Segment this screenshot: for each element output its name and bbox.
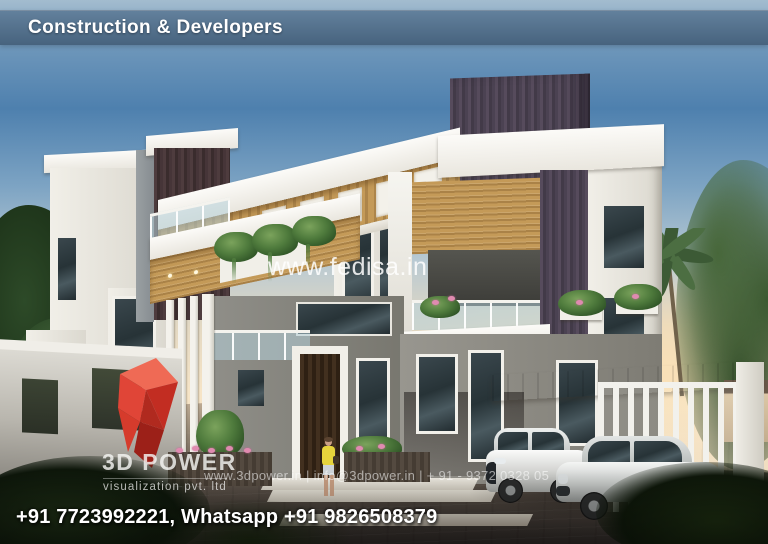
- wall-opening: [22, 378, 58, 434]
- flowers: [448, 296, 455, 301]
- pedestrian-bag: [333, 456, 339, 464]
- render-canvas: www.fedisa.in 3D POWER visualization pvt…: [0, 0, 768, 544]
- window-left-tower: [58, 238, 76, 300]
- window-ground-1: [416, 354, 458, 434]
- pedestrian-hair: [324, 437, 333, 442]
- flowers: [576, 300, 583, 305]
- vine: [232, 258, 236, 284]
- window-small: [238, 370, 264, 406]
- flowers: [432, 300, 439, 305]
- transom-window: [296, 302, 392, 336]
- header-title: Construction & Developers: [28, 11, 283, 45]
- window-right-upper: [604, 206, 644, 268]
- flowers: [632, 294, 639, 299]
- watermark-contact: www.3dpower.in | info@3dpower.in | + 91 …: [204, 468, 549, 483]
- footer-phone-text: +91 7723992221, Whatsapp +91 9826508379: [16, 506, 437, 529]
- balcony-wood-ceiling: [412, 178, 540, 254]
- hanging-plant: [252, 224, 298, 256]
- header-bar: Construction & Developers: [0, 10, 768, 45]
- hanging-plant: [292, 216, 336, 246]
- hanging-plant: [214, 232, 258, 262]
- car-headlight: [494, 458, 506, 464]
- watermark-site: www.fedisa.in: [268, 253, 427, 282]
